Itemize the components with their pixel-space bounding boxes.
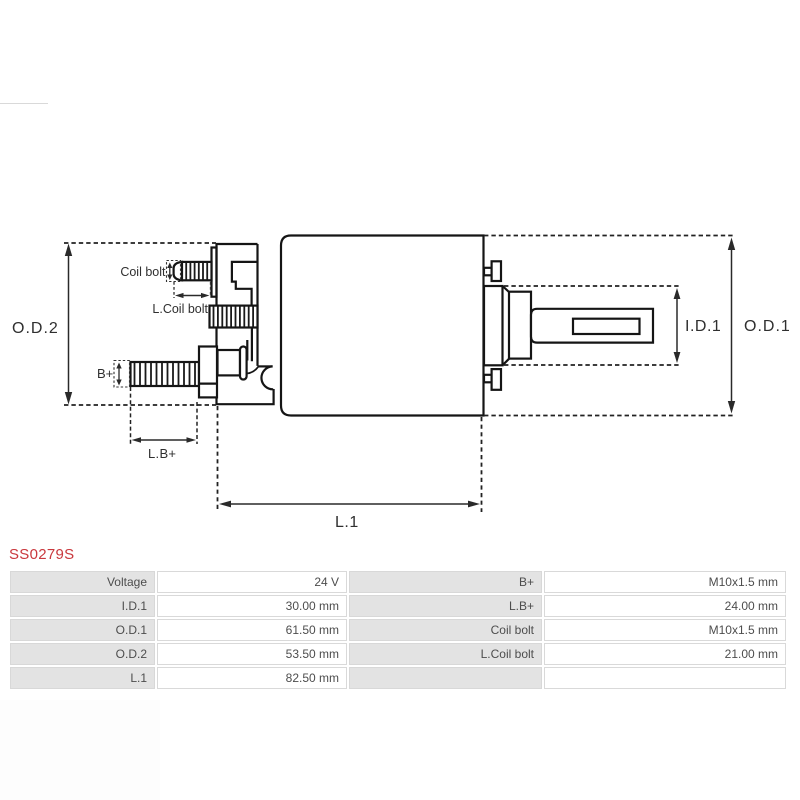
svg-text:L.1: L.1 bbox=[335, 514, 359, 531]
svg-text:I.D.1: I.D.1 bbox=[685, 318, 721, 335]
svg-text:O.D.1: O.D.1 bbox=[744, 318, 791, 335]
svg-text:L.Coil bolt: L.Coil bolt bbox=[152, 302, 208, 316]
svg-text:B+: B+ bbox=[97, 366, 113, 381]
svg-text:L.B+: L.B+ bbox=[148, 446, 176, 461]
svg-text:O.D.2: O.D.2 bbox=[12, 320, 59, 337]
svg-text:Coil bolt: Coil bolt bbox=[120, 265, 166, 279]
